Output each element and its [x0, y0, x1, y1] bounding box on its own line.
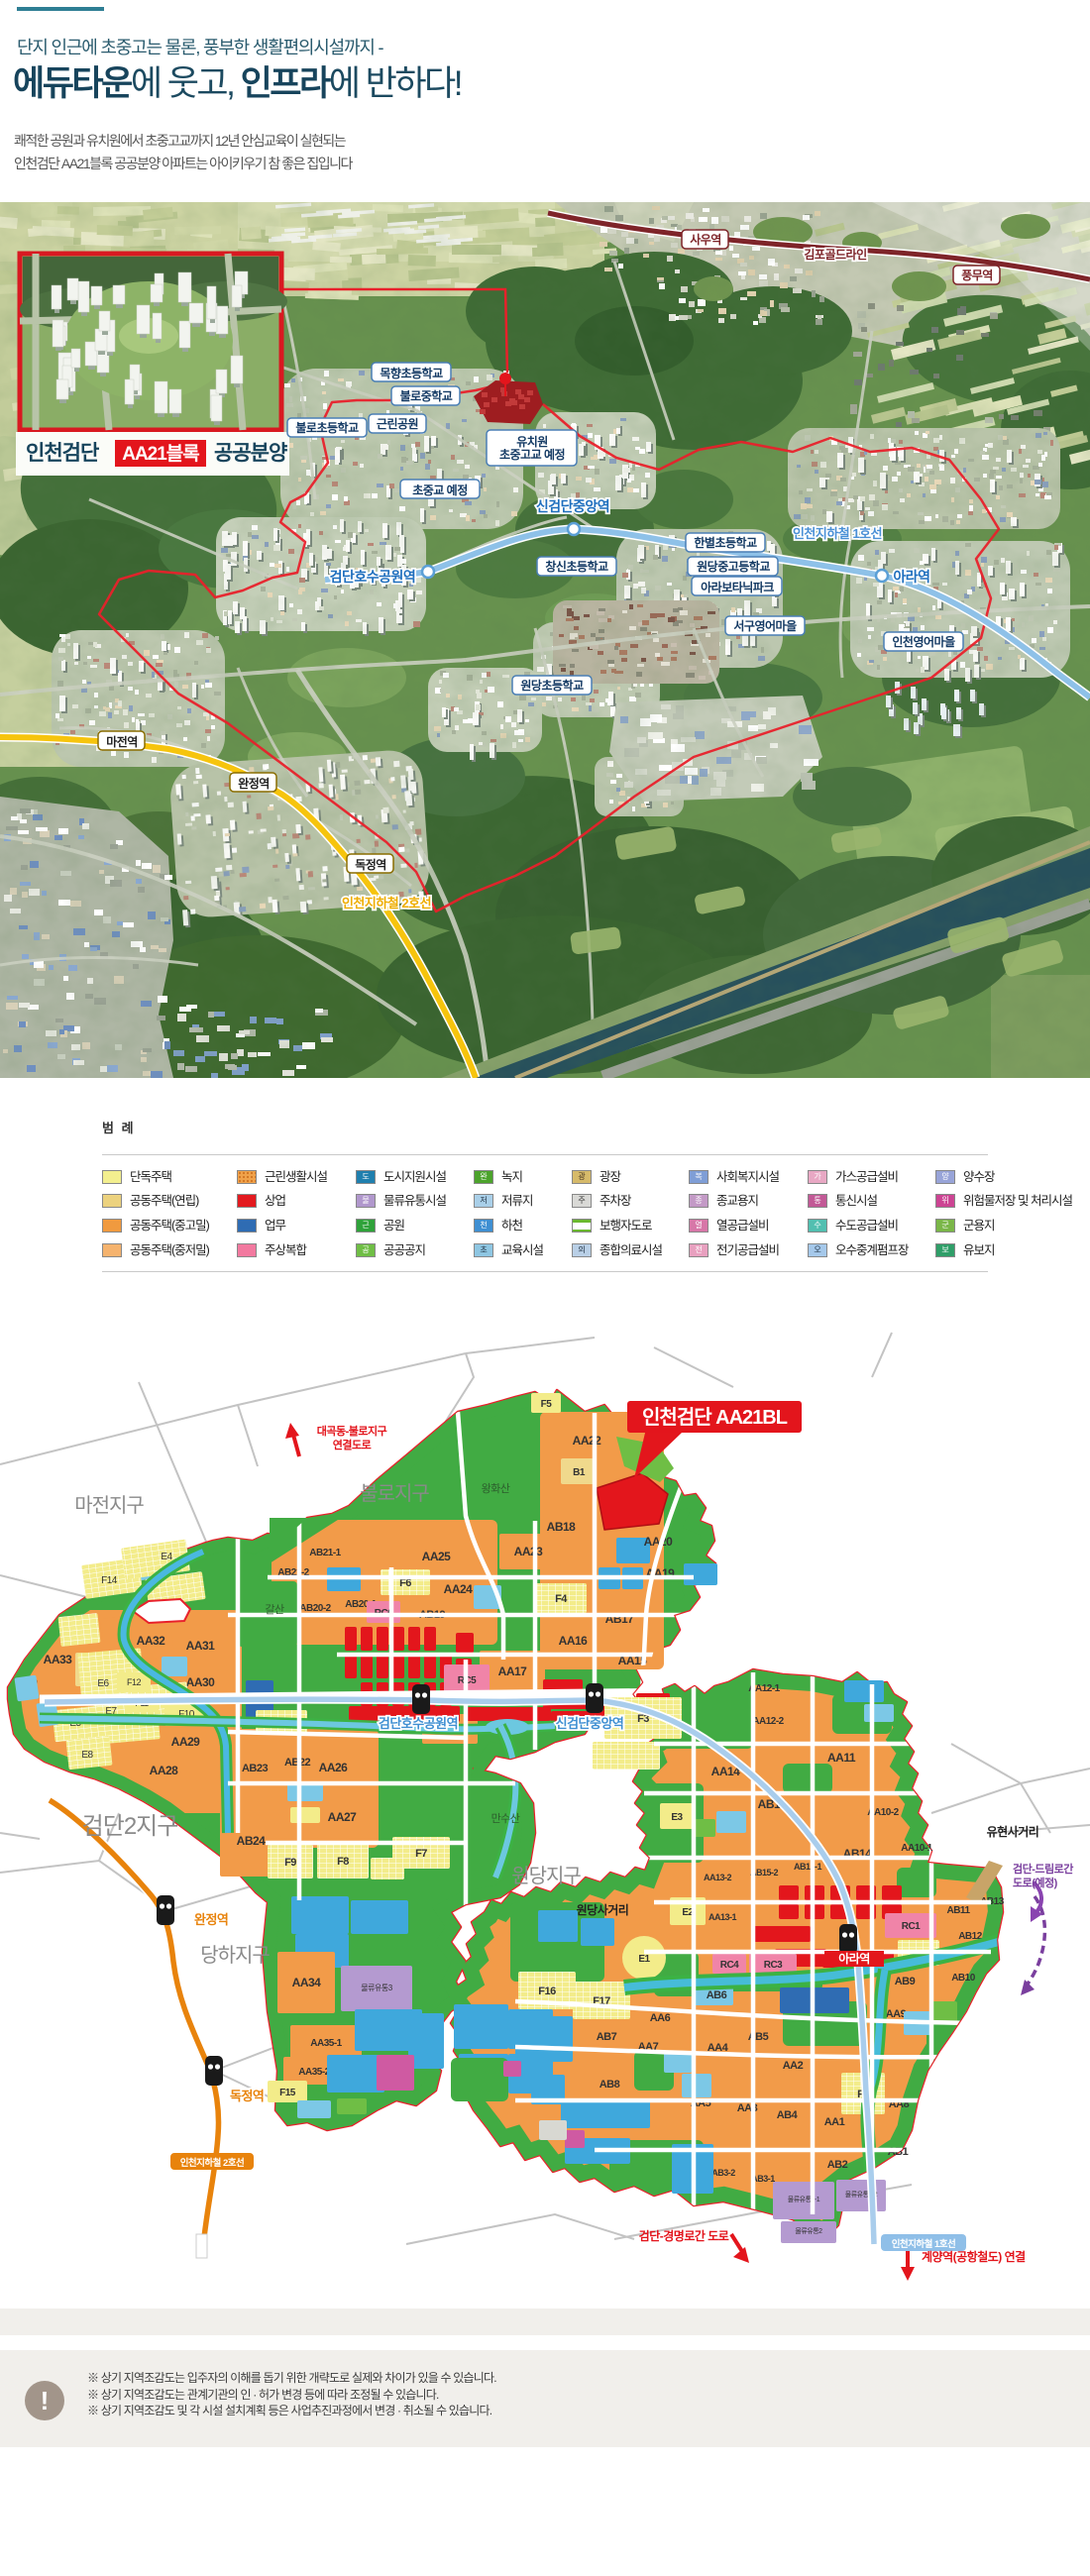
svg-text:갈산: 갈산: [265, 1602, 284, 1616]
svg-text:AA31: AA31: [186, 1639, 216, 1653]
svg-text:F5: F5: [541, 1399, 553, 1410]
svg-text:불로초등학교: 불로초등학교: [295, 420, 359, 435]
svg-text:RC4: RC4: [720, 1960, 739, 1971]
svg-text:F7: F7: [415, 1848, 427, 1860]
svg-text:원당지구: 원당지구: [511, 1865, 581, 1887]
svg-text:신검단중앙역: 신검단중앙역: [556, 1716, 624, 1731]
svg-text:AA22: AA22: [573, 1434, 602, 1448]
svg-text:공공분양: 공공분양: [214, 442, 287, 465]
svg-text:인천검단 AA21BL: 인천검단 AA21BL: [642, 1406, 788, 1429]
svg-text:인천지하철 1호선: 인천지하철 1호선: [892, 2238, 956, 2250]
svg-text:F8: F8: [337, 1856, 349, 1868]
svg-text:왕화산: 왕화산: [482, 1482, 510, 1495]
svg-text:AA21블록: AA21블록: [122, 443, 199, 465]
svg-text:AB18: AB18: [547, 1520, 577, 1534]
svg-text:근린공원: 근린공원: [377, 416, 418, 431]
svg-text:당하지구: 당하지구: [200, 1944, 270, 1967]
svg-text:AB21-1: AB21-1: [309, 1548, 341, 1558]
svg-text:AA26: AA26: [319, 1761, 349, 1774]
svg-text:AA12-2: AA12-2: [752, 1716, 784, 1727]
svg-text:AA6: AA6: [650, 2012, 671, 2024]
svg-text:F16: F16: [538, 1986, 556, 1997]
svg-text:AA2: AA2: [783, 2060, 804, 2072]
svg-text:검단호수공원역: 검단호수공원역: [379, 1716, 458, 1731]
svg-text:AA17: AA17: [498, 1664, 528, 1678]
svg-text:인천지하철 2호선: 인천지하철 2호선: [180, 2157, 245, 2169]
svg-text:AA10-1: AA10-1: [901, 1843, 932, 1854]
svg-text:AB15-1: AB15-1: [794, 1862, 822, 1872]
svg-text:초중교 예정: 초중교 예정: [412, 483, 468, 497]
svg-text:검단-경명로간 도로: 검단-경명로간 도로: [639, 2228, 729, 2243]
svg-text:독정역: 독정역: [230, 2089, 264, 2103]
svg-text:E6: E6: [97, 1678, 109, 1689]
svg-text:사우역: 사우역: [690, 232, 721, 247]
svg-text:AA35-1: AA35-1: [310, 2038, 342, 2049]
svg-text:AB24: AB24: [237, 1834, 267, 1848]
svg-text:독정역: 독정역: [355, 857, 386, 872]
svg-text:RC3: RC3: [764, 1960, 783, 1971]
svg-text:아라역: 아라역: [838, 1951, 870, 1966]
svg-text:창신초등학교: 창신초등학교: [545, 559, 608, 574]
svg-text:마전지구: 마전지구: [74, 1494, 144, 1517]
svg-text:F14: F14: [101, 1575, 118, 1586]
svg-text:불로중학교: 불로중학교: [400, 388, 453, 403]
svg-text:만수산: 만수산: [491, 1812, 520, 1825]
svg-text:검단호수공원역: 검단호수공원역: [330, 569, 416, 585]
svg-text:AB8: AB8: [599, 2079, 620, 2091]
svg-text:AA25: AA25: [422, 1550, 452, 1563]
svg-text:AA16: AA16: [559, 1634, 589, 1648]
svg-text:F15: F15: [279, 2088, 296, 2098]
svg-text:물류유통2: 물류유통2: [795, 2227, 822, 2235]
svg-text:마전역: 마전역: [106, 734, 138, 749]
svg-text:RC1: RC1: [902, 1921, 921, 1932]
svg-text:물류유통1-1: 물류유통1-1: [788, 2196, 820, 2203]
svg-text:인천지하철 2호선: 인천지하철 2호선: [342, 896, 431, 911]
svg-text:F12: F12: [127, 1677, 142, 1687]
svg-text:F4: F4: [555, 1593, 568, 1605]
svg-text:AA35-2: AA35-2: [298, 2067, 330, 2078]
svg-text:AB4: AB4: [777, 2109, 799, 2121]
svg-text:AB3-2: AB3-2: [711, 2168, 735, 2178]
svg-text:원당초등학교: 원당초등학교: [520, 678, 584, 693]
svg-text:B1: B1: [573, 1467, 586, 1478]
svg-text:E8: E8: [81, 1750, 93, 1761]
svg-text:AA33: AA33: [44, 1653, 73, 1666]
svg-text:신검단중앙역: 신검단중앙역: [536, 498, 609, 514]
svg-text:인천검단: 인천검단: [26, 442, 99, 465]
svg-text:AA29: AA29: [171, 1735, 201, 1749]
svg-text:서구영어마을: 서구영어마을: [733, 618, 797, 633]
svg-text:AB20-2: AB20-2: [299, 1603, 331, 1614]
svg-text:연결도로: 연결도로: [333, 1438, 372, 1451]
svg-text:불로지구: 불로지구: [360, 1482, 429, 1505]
svg-text:AA9: AA9: [886, 2008, 907, 2020]
svg-text:E1: E1: [638, 1954, 650, 1965]
svg-text:AA32: AA32: [137, 1634, 166, 1648]
svg-text:AA27: AA27: [328, 1810, 358, 1824]
svg-text:완정역: 완정역: [194, 1912, 228, 1927]
svg-text:아라보타닉파크: 아라보타닉파크: [701, 580, 774, 594]
svg-text:계양역(공항철도) 연결: 계양역(공항철도) 연결: [922, 2249, 1026, 2264]
svg-text:AA13-1: AA13-1: [708, 1912, 737, 1922]
svg-text:AA30: AA30: [186, 1675, 216, 1689]
svg-text:AA28: AA28: [150, 1764, 179, 1777]
svg-text:AA23: AA23: [514, 1545, 544, 1558]
svg-text:AA24: AA24: [444, 1582, 474, 1596]
svg-text:검단2지구: 검단2지구: [82, 1813, 178, 1840]
svg-text:E4: E4: [161, 1552, 172, 1562]
svg-text:유현사거리: 유현사거리: [987, 1824, 1039, 1839]
svg-text:AA13-2: AA13-2: [704, 1873, 732, 1882]
svg-text:김포골드라인: 김포골드라인: [804, 247, 867, 262]
svg-text:AB9: AB9: [895, 1976, 916, 1987]
svg-text:AB6: AB6: [707, 1989, 727, 2001]
svg-text:물류유통3: 물류유통3: [361, 1984, 392, 1992]
svg-text:검단-드림로간: 검단-드림로간: [1013, 1862, 1073, 1876]
svg-text:AB23: AB23: [242, 1763, 269, 1774]
svg-text:아라역: 아라역: [893, 569, 929, 585]
svg-text:풍무역: 풍무역: [961, 268, 993, 282]
svg-text:원당중고등학교: 원당중고등학교: [697, 559, 770, 574]
svg-text:목향초등학교: 목향초등학교: [380, 366, 443, 380]
svg-text:AB11: AB11: [946, 1905, 970, 1916]
svg-text:E3: E3: [671, 1812, 683, 1823]
svg-text:F9: F9: [284, 1857, 296, 1869]
svg-text:AB2: AB2: [827, 2159, 848, 2171]
svg-text:한별초등학교: 한별초등학교: [694, 535, 757, 550]
svg-text:인천영어마을: 인천영어마을: [892, 634, 955, 649]
svg-text:초중고교 예정: 초중고교 예정: [499, 447, 565, 462]
svg-text:완정역: 완정역: [238, 776, 270, 791]
svg-text:AB10: AB10: [951, 1973, 976, 1984]
svg-text:인천지하철 1호선: 인천지하철 1호선: [793, 526, 882, 541]
svg-text:AA1: AA1: [824, 2116, 845, 2128]
svg-text:AA11: AA11: [827, 1751, 856, 1765]
svg-text:AA34: AA34: [292, 1976, 322, 1989]
svg-text:대곡동-불로지구: 대곡동-불로지구: [317, 1424, 387, 1438]
svg-text:도로(예정): 도로(예정): [1013, 1876, 1058, 1889]
svg-text:유치원: 유치원: [516, 434, 548, 449]
svg-text:AB7: AB7: [597, 2031, 617, 2043]
svg-text:원당사거리: 원당사거리: [577, 1902, 629, 1917]
